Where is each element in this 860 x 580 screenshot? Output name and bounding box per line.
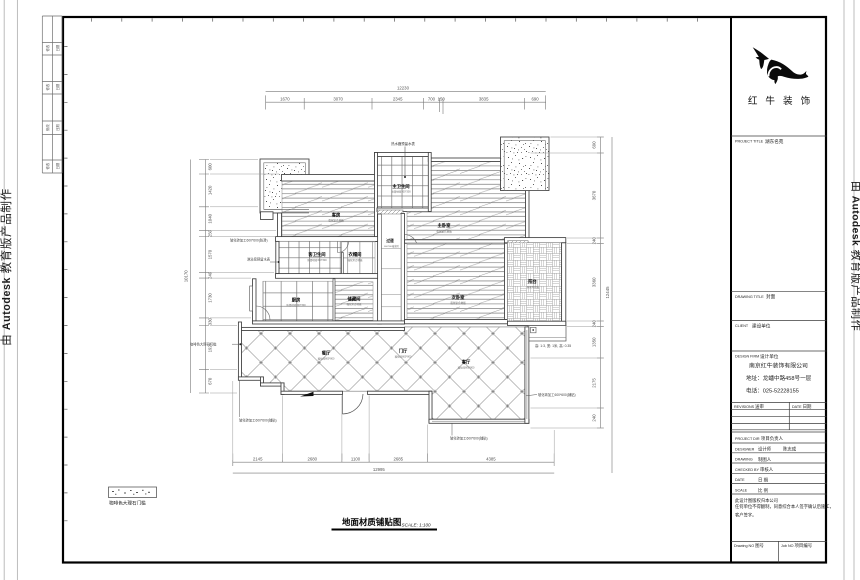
svg-text:咖啡色大理石门槛: 咖啡色大理石门槛 xyxy=(190,342,217,347)
svg-text:咖啡色大理石门槛: 咖啡色大理石门槛 xyxy=(109,500,146,507)
svg-text:电话：025-52228155: 电话：025-52228155 xyxy=(746,387,799,395)
svg-text:玻化砖800*800: 玻化砖800*800 xyxy=(458,366,475,370)
svg-text:CLIENT: CLIENT xyxy=(735,324,749,328)
svg-text:10170: 10170 xyxy=(184,270,189,283)
svg-text:日期: 日期 xyxy=(55,44,60,51)
svg-text:高: 1:3, 宽: 1米, 高: 0.35: 高: 1:3, 宽: 1米, 高: 0.35 xyxy=(535,343,571,348)
svg-text:1420: 1420 xyxy=(208,185,213,195)
svg-text:比 例: 比 例 xyxy=(758,487,769,494)
svg-text:日期: 日期 xyxy=(55,162,60,169)
svg-text:1670: 1670 xyxy=(280,97,290,102)
svg-text:DESIGNER: DESIGNER xyxy=(735,447,755,451)
svg-text:地面材质铺贴图: 地面材质铺贴图 xyxy=(342,517,401,527)
svg-text:12445: 12445 xyxy=(605,286,610,299)
svg-text:12230: 12230 xyxy=(397,86,410,91)
svg-text:防滑地砖300*300: 防滑地砖300*300 xyxy=(307,258,327,262)
svg-text:日期: 日期 xyxy=(55,124,60,131)
svg-text:玻化砖800*800: 玻化砖800*800 xyxy=(318,357,335,361)
svg-text:1040: 1040 xyxy=(208,213,213,223)
svg-text:DESIGN FIRM: DESIGN FIRM xyxy=(735,355,759,359)
svg-text:强化复合地板: 强化复合地板 xyxy=(347,258,363,262)
svg-text:150: 150 xyxy=(438,97,446,102)
svg-text:2680: 2680 xyxy=(308,456,318,461)
svg-text:由 Autodesk 教育版产品制作: 由 Autodesk 教育版产品制作 xyxy=(849,181,860,332)
svg-text:PROJECT TITLE: PROJECT TITLE xyxy=(735,140,764,144)
svg-text:12995: 12995 xyxy=(373,467,386,472)
svg-text:修改: 修改 xyxy=(45,162,50,169)
svg-text:南京红牛装饰有限公司: 南京红牛装饰有限公司 xyxy=(749,362,808,370)
svg-text:CHECKED BY: CHECKED BY xyxy=(735,468,760,472)
svg-text:600: 600 xyxy=(208,163,213,171)
svg-text:审核人: 审核人 xyxy=(760,466,774,473)
svg-text:4385: 4385 xyxy=(486,456,496,461)
svg-text:湖东名苑: 湖东名苑 xyxy=(765,138,784,145)
svg-text:1920: 1920 xyxy=(208,342,213,352)
svg-text:由 Autodesk 教育版产品制作: 由 Autodesk 教育版产品制作 xyxy=(0,188,13,346)
svg-text:3360: 3360 xyxy=(592,277,597,287)
svg-text:红牛装饰: 红牛装饰 xyxy=(748,95,818,107)
svg-text:强化复合地板: 强化复合地板 xyxy=(436,230,452,234)
svg-text:3070: 3070 xyxy=(333,97,343,102)
svg-text:防滑地砖300*300: 防滑地砖300*300 xyxy=(286,303,306,307)
svg-text:储藏间: 储藏间 xyxy=(347,296,362,303)
svg-text:客卫生间: 客卫生间 xyxy=(307,251,326,258)
svg-text:玻化砖加工600*600(铺贴): 玻化砖加工600*600(铺贴) xyxy=(239,418,277,423)
svg-text:厨房: 厨房 xyxy=(292,297,301,304)
svg-text:1350: 1350 xyxy=(592,337,597,347)
svg-text:690: 690 xyxy=(592,141,597,149)
svg-text:主卧室: 主卧室 xyxy=(438,222,452,229)
svg-text:700: 700 xyxy=(428,97,436,102)
svg-text:2145: 2145 xyxy=(253,456,263,461)
svg-text:玻化砖800*800: 玻化砖800*800 xyxy=(395,355,412,359)
svg-text:修改: 修改 xyxy=(45,124,50,131)
svg-text:240: 240 xyxy=(592,414,597,422)
svg-text:1100: 1100 xyxy=(351,456,361,461)
svg-text:项目负责人: 项目负责人 xyxy=(761,435,784,442)
svg-text:3835: 3835 xyxy=(479,97,489,102)
svg-text:地址：龙蟠中路458号一层: 地址：龙蟠中路458号一层 xyxy=(746,374,812,382)
svg-text:设计单位: 设计单位 xyxy=(760,353,779,360)
svg-text:热水器预留水表: 热水器预留水表 xyxy=(391,141,415,146)
svg-text:强化复合地板: 强化复合地板 xyxy=(450,301,466,305)
svg-text:1570: 1570 xyxy=(208,249,213,259)
svg-text:陈志成: 陈志成 xyxy=(783,446,797,453)
svg-text:修改: 修改 xyxy=(45,83,50,90)
svg-text:690: 690 xyxy=(532,97,540,102)
svg-text:Job NO 项目编号: Job NO 项目编号 xyxy=(781,542,813,549)
svg-text:过道: 过道 xyxy=(386,238,394,243)
svg-text:强化复合地板: 强化复合地板 xyxy=(328,219,344,223)
svg-text:2175: 2175 xyxy=(592,378,597,388)
svg-text:客房: 客房 xyxy=(331,212,341,219)
svg-text:玻化砖加工600*600(铺贴): 玻化砖加工600*600(铺贴) xyxy=(538,392,576,397)
svg-text:设计师: 设计师 xyxy=(758,446,772,453)
svg-text:修改: 修改 xyxy=(45,44,50,51)
svg-text:防腐木地板: 防腐木地板 xyxy=(527,285,540,289)
svg-text:DRAWING TITLE: DRAWING TITLE xyxy=(735,295,764,299)
svg-text:玻化砖加工600*600(防滑): 玻化砖加工600*600(防滑) xyxy=(230,238,268,243)
svg-text:此设计图版权归本公司: 此设计图版权归本公司 xyxy=(735,497,778,504)
svg-text:DRAWING: DRAWING xyxy=(735,458,753,462)
svg-text:门厅: 门厅 xyxy=(399,348,408,355)
svg-text:DATE: DATE xyxy=(735,478,745,482)
svg-text:衣帽间: 衣帽间 xyxy=(349,251,363,258)
svg-text:1730: 1730 xyxy=(208,293,213,303)
svg-text:客户签字。: 客户签字。 xyxy=(735,512,756,519)
svg-text:任何单位不得翻制，同意综合本人签字确认后施工，: 任何单位不得翻制，同意综合本人签字确认后施工， xyxy=(735,503,834,510)
svg-text:强化复合地板: 强化复合地板 xyxy=(346,302,362,306)
svg-text:330: 330 xyxy=(208,318,213,326)
svg-text:封面: 封面 xyxy=(766,293,776,300)
svg-text:建设单位: 建设单位 xyxy=(752,323,771,330)
svg-text:防滑地砖300*300: 防滑地砖300*300 xyxy=(391,190,411,194)
svg-text:阳台: 阳台 xyxy=(528,278,537,285)
svg-text:玻化砖加工600*600(铺贴): 玻化砖加工600*600(铺贴) xyxy=(450,436,488,441)
svg-text:670: 670 xyxy=(208,377,213,385)
svg-text:餐厅: 餐厅 xyxy=(322,350,331,357)
svg-text:日期: 日期 xyxy=(55,83,60,90)
svg-text:3670: 3670 xyxy=(592,190,597,200)
svg-text:SCALE: SCALE xyxy=(735,489,748,493)
svg-text:REVISIONS 送审: REVISIONS 送审 xyxy=(734,403,765,410)
svg-text:淋浴房预留水表: 淋浴房预留水表 xyxy=(247,257,271,262)
svg-text:2345: 2345 xyxy=(393,97,403,102)
svg-text:PROJECT DIR: PROJECT DIR xyxy=(735,437,760,441)
svg-text:次卧室: 次卧室 xyxy=(452,294,466,301)
svg-text:制图人: 制图人 xyxy=(758,456,772,463)
svg-text:SCALE: 1:100: SCALE: 1:100 xyxy=(402,523,432,528)
svg-text:主卫生间: 主卫生间 xyxy=(392,183,410,190)
svg-text:客厅: 客厅 xyxy=(461,359,471,366)
svg-text:2685: 2685 xyxy=(394,456,404,461)
